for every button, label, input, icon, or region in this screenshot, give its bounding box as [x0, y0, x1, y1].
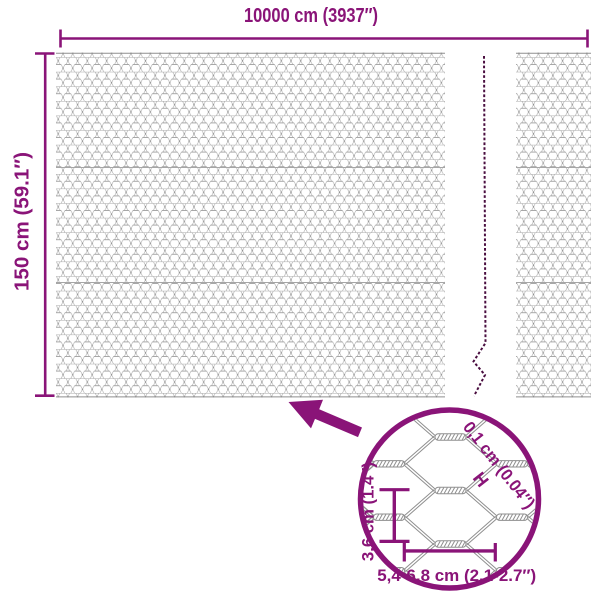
svg-text:10000 cm (3937″): 10000 cm (3937″) — [244, 5, 378, 27]
svg-text:150 cm (59.1″): 150 cm (59.1″) — [11, 152, 33, 291]
svg-text:3,6 cm (1.4″): 3,6 cm (1.4″) — [359, 462, 378, 561]
svg-text:5,4-6,8 cm (2.1-2.7″): 5,4-6,8 cm (2.1-2.7″) — [377, 566, 536, 585]
